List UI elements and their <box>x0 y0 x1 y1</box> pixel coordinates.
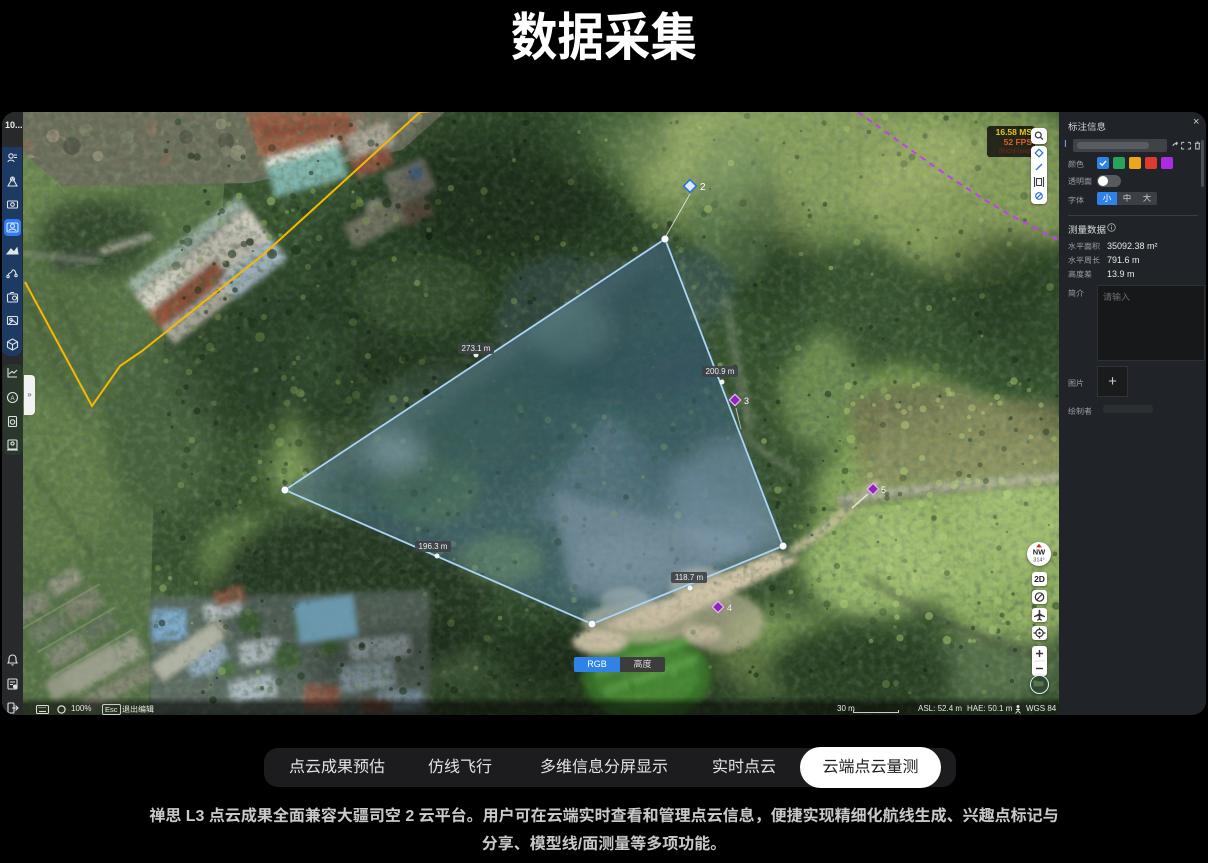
svg-text:NW: NW <box>1033 548 1046 557</box>
svg-text:314°: 314° <box>1033 558 1044 564</box>
svg-text:A: A <box>10 396 14 402</box>
